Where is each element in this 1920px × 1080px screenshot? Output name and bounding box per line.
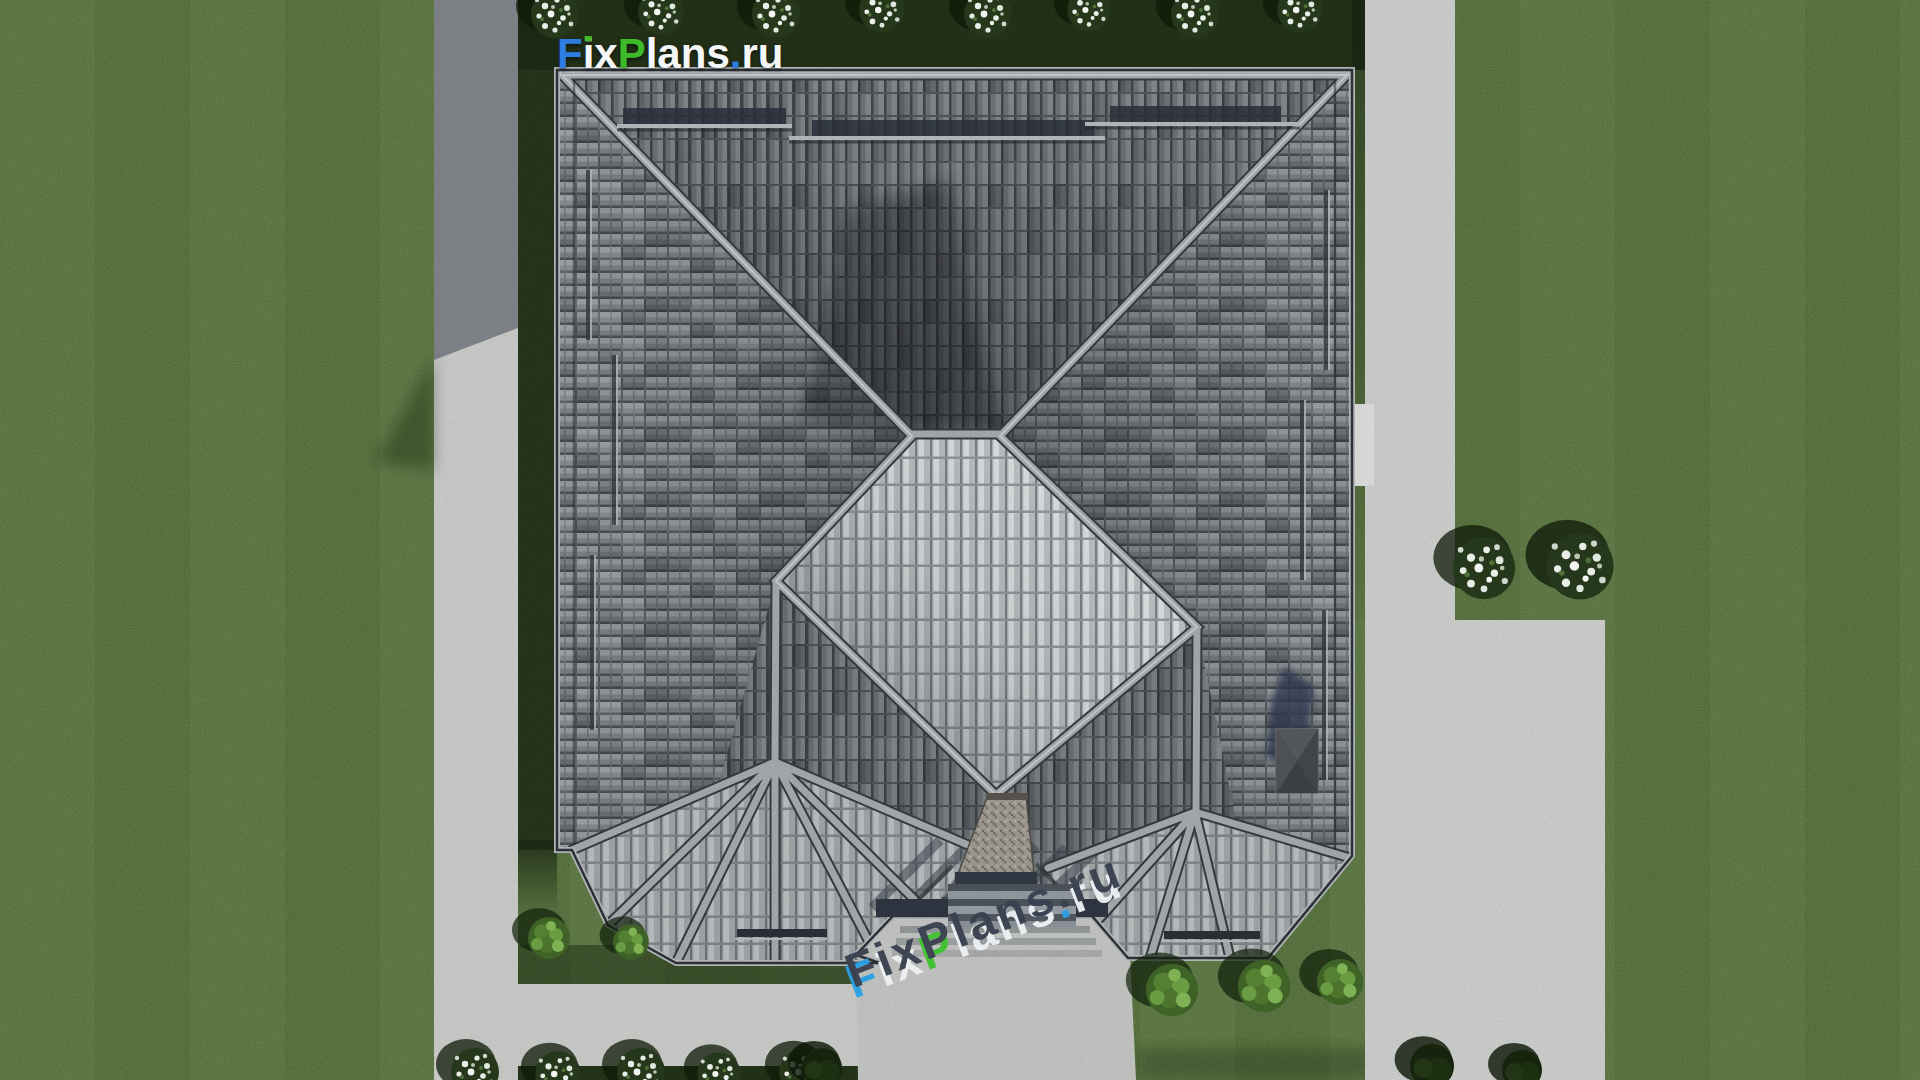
site-plan-render: FixPlans.ru FixPlans.ru <box>0 0 1920 1080</box>
fixplans-logo: FixPlans.ru <box>557 33 783 75</box>
